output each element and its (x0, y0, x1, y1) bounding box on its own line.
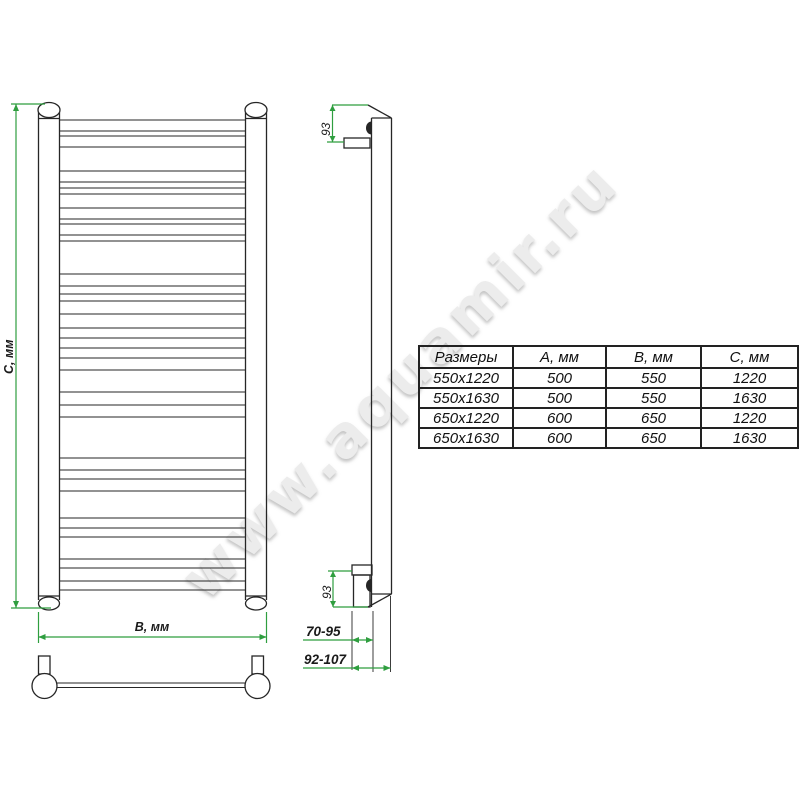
top-rung-profile (366, 122, 372, 135)
arrow-right-icon (260, 634, 267, 640)
arrow-up-icon (13, 104, 19, 111)
table-row: 550x1630 500 550 1630 (419, 388, 798, 408)
height-dim-label: С, мм (2, 340, 16, 374)
table-cell: 550 (606, 368, 701, 388)
front-view (38, 103, 267, 611)
table-cell: 550x1220 (419, 368, 513, 388)
arrow-right-icon (384, 665, 391, 671)
arrow-right-icon (366, 637, 373, 643)
table-header-cell: А, мм (513, 346, 606, 368)
table-row: 650x1220 600 650 1220 (419, 408, 798, 428)
right-pipe-stub (252, 656, 264, 674)
table-cell: 1220 (701, 368, 798, 388)
table-cell: 650x1630 (419, 428, 513, 448)
top-bracket (344, 138, 370, 148)
table-header-cell: Размеры (419, 346, 513, 368)
table-cell: 500 (513, 368, 606, 388)
table-cell: 1220 (701, 408, 798, 428)
side-view (344, 105, 392, 672)
top-bracket-offset-label: 93 (319, 122, 333, 136)
table-cell: 1630 (701, 388, 798, 408)
front-view-dimensions (11, 104, 267, 643)
arrow-down-icon (330, 601, 336, 607)
table-cell: 650x1220 (419, 408, 513, 428)
table-header-row: Размеры А, мм В, мм С, мм (419, 346, 798, 368)
right-collector-section (245, 674, 270, 699)
wall-distance-outer-label: 92-107 (304, 652, 348, 667)
table-row: 550x1220 500 550 1220 (419, 368, 798, 388)
bottom-bracket-plate (352, 565, 372, 575)
top-left-cap (38, 103, 60, 118)
bottom-right-cap (246, 597, 267, 610)
table-row: 650x1630 600 650 1630 (419, 428, 798, 448)
table-header-cell: В, мм (606, 346, 701, 368)
page: { "watermark": { "text": "www.aquamir.ru… (0, 0, 800, 800)
left-collector-section (32, 674, 57, 699)
table-cell: 650 (606, 408, 701, 428)
arrow-up-icon (330, 105, 336, 111)
left-pipe-stub (39, 656, 51, 674)
top-view (32, 656, 270, 699)
arrow-left-icon (39, 634, 46, 640)
table-cell: 1630 (701, 428, 798, 448)
table-cell: 550x1630 (419, 388, 513, 408)
arrow-up-icon (330, 571, 336, 577)
table-header-cell: С, мм (701, 346, 798, 368)
table-cell: 550 (606, 388, 701, 408)
width-dim-label: В, мм (135, 620, 169, 634)
arrow-left-icon (352, 665, 359, 671)
arrow-down-icon (13, 601, 19, 608)
side-view-dimensions (303, 105, 391, 671)
arrow-left-icon (352, 637, 359, 643)
bottom-rung-profile (366, 579, 372, 592)
table-cell: 500 (513, 388, 606, 408)
wall-distance-inner-label: 70-95 (306, 624, 341, 639)
side-tube-top-chamfer (368, 105, 392, 118)
dimensions-table: Размеры А, мм В, мм С, мм 550x1220 500 5… (418, 345, 799, 449)
bottom-bracket-offset-label: 93 (320, 585, 334, 599)
radiator-rungs (60, 120, 246, 590)
table-cell: 650 (606, 428, 701, 448)
table-cell: 600 (513, 408, 606, 428)
table-cell: 600 (513, 428, 606, 448)
bottom-bracket-column (354, 575, 371, 607)
top-right-cap (245, 103, 267, 118)
